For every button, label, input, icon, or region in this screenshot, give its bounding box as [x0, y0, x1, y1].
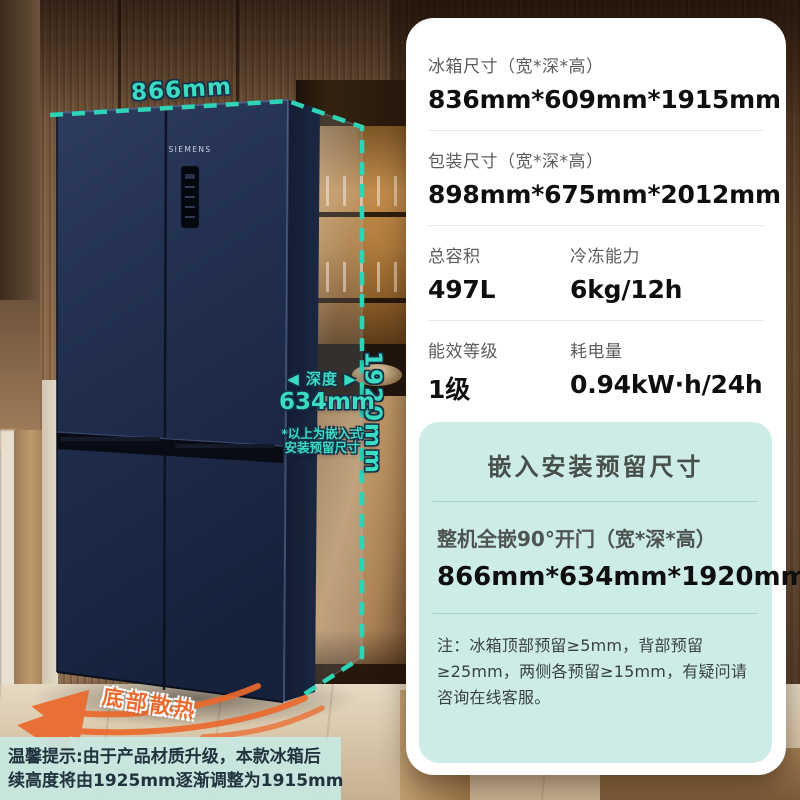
- brand-logo: SIEMENS: [168, 145, 211, 154]
- depth-dimension-group: ◀ 深度 ▶ 634mm *以上为嵌入式 安装预留尺寸: [279, 371, 365, 455]
- depth-dimension-label: 634mm: [279, 389, 365, 415]
- package-size-value: 898mm*675mm*2012mm: [428, 180, 764, 209]
- spec-row-package-size: 包装尺寸（宽*深*高） 898mm*675mm*2012mm: [428, 147, 764, 209]
- embed-dimensions-card: 嵌入安装预留尺寸 整机全嵌90°开门（宽*深*高） 866mm*634mm*19…: [419, 422, 772, 763]
- fridge-size-label: 冰箱尺寸（宽*深*高）: [428, 52, 764, 77]
- divider: [428, 130, 764, 131]
- fridge-size-value: 836mm*609mm*1915mm: [428, 85, 764, 114]
- spec-row-fridge-size: 冰箱尺寸（宽*深*高） 836mm*609mm*1915mm: [428, 52, 764, 114]
- fridge-front: [57, 100, 288, 702]
- embed-clearance-note: 注：冰箱顶部预留≥5mm，背部预留≥25mm，两侧各预留≥15mm，有疑问请咨询…: [437, 633, 754, 711]
- tip-line-1: 温馨提示:由于产品材质升级，本款冰箱后: [8, 745, 333, 769]
- divider: [428, 225, 764, 226]
- divider: [433, 613, 758, 614]
- spec-card: 冰箱尺寸（宽*深*高） 836mm*609mm*1915mm 包装尺寸（宽*深*…: [406, 18, 786, 775]
- freezing-capacity: 冷冻能力 6kg/12h: [570, 242, 764, 304]
- package-size-label: 包装尺寸（宽*深*高）: [428, 147, 764, 172]
- spec-row-capacity-freezing: 总容积 497L 冷冻能力 6kg/12h: [428, 242, 764, 304]
- bottom-tip-banner: 温馨提示:由于产品材质升级，本款冰箱后 续高度将由1925mm逐渐调整为1915…: [0, 737, 341, 800]
- divider: [433, 501, 758, 502]
- power-consumption: 耗电量 0.94kW·h/24h: [570, 337, 764, 406]
- tip-line-2: 续高度将由1925mm逐渐调整为1915mm: [8, 769, 333, 793]
- spec-row-energy-power: 能效等级 1级 耗电量 0.94kW·h/24h: [428, 337, 764, 406]
- divider: [428, 320, 764, 321]
- embed-open-door-label: 整机全嵌90°开门（宽*深*高）: [437, 523, 754, 552]
- depth-direction-label: ◀ 深度 ▶: [279, 371, 365, 388]
- embed-note-line2: 安装预留尺寸: [279, 441, 365, 455]
- total-capacity: 总容积 497L: [428, 242, 570, 304]
- embed-note-line1: *以上为嵌入式: [279, 427, 365, 441]
- energy-rating: 能效等级 1级: [428, 337, 570, 406]
- embed-card-title: 嵌入安装预留尺寸: [437, 422, 754, 501]
- embed-open-door-value: 866mm*634mm*1920mm: [437, 562, 754, 592]
- product-spec-infographic: SIEMENS 866mm 1920mm ◀ 深度 ▶ 634mm *以上为嵌入…: [0, 0, 800, 800]
